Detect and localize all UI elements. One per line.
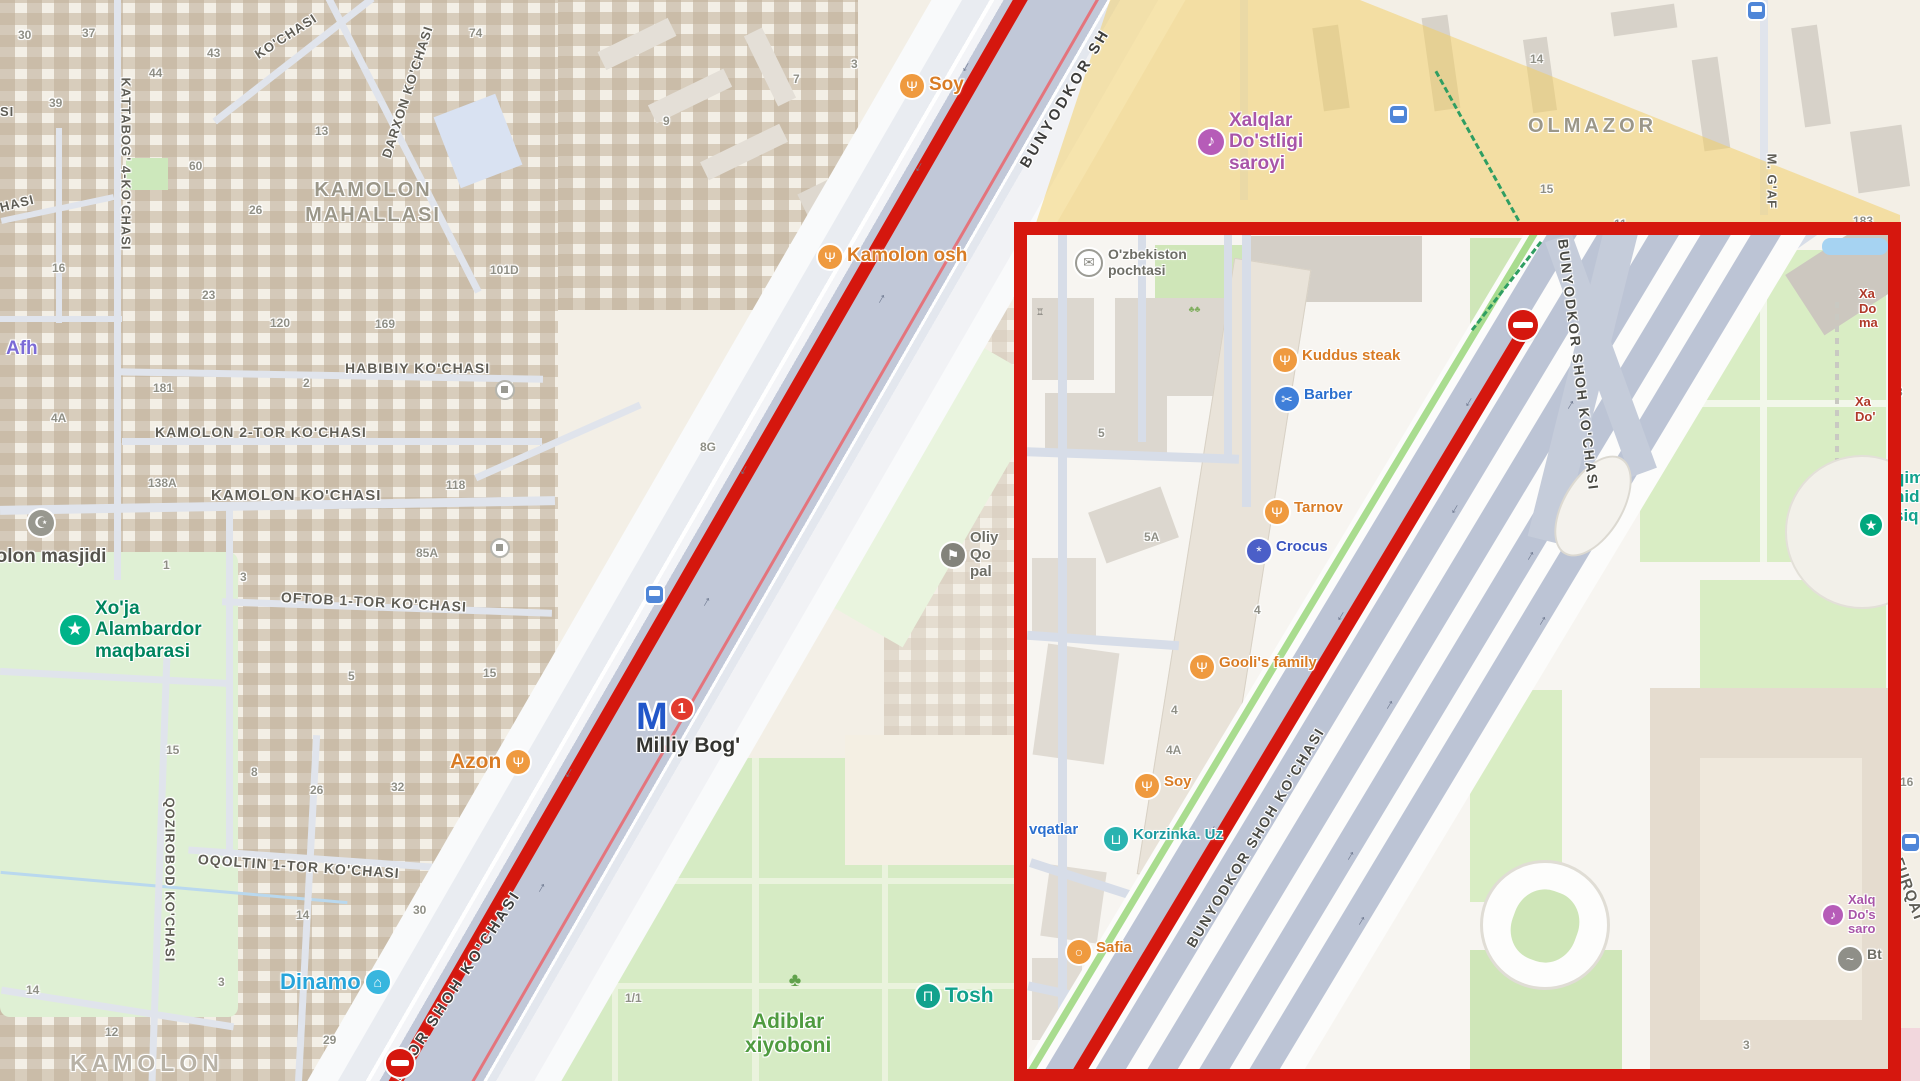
area-label: OLMAZOR	[1528, 114, 1657, 139]
map-poi[interactable]: ♣	[780, 966, 810, 996]
poi-label: nolon masjidi	[0, 546, 106, 567]
building-number: 138A	[148, 476, 177, 490]
street	[226, 506, 233, 866]
poi-label: Afh	[6, 338, 38, 359]
building-number: 1	[163, 558, 170, 572]
poi-label: Kamolon osh	[847, 245, 967, 266]
poi-icon: ☪	[28, 510, 54, 536]
street	[56, 128, 62, 323]
map-poi[interactable]: ★ Xo'ja Alambardor maqbarasi	[60, 598, 202, 662]
building-number: 1/1	[625, 991, 642, 1005]
poi-label: Dinamo	[280, 970, 361, 995]
transit-stop-icon[interactable]	[1390, 106, 1407, 123]
poi-icon: Ψ	[818, 245, 842, 269]
street-label: KAMOLON KO'CHASI	[211, 487, 381, 504]
inset-border	[1014, 222, 1901, 1081]
poi-label: Xalqlar Do'stligi saroyi	[1229, 110, 1303, 174]
map-poi[interactable]: nolon masjidi	[0, 546, 106, 567]
map-poi[interactable]: Afh	[6, 338, 38, 359]
building-number: 181	[153, 381, 173, 395]
building-number: 30	[413, 903, 426, 917]
building-number: 3	[218, 975, 225, 989]
building	[1611, 4, 1678, 37]
building-number: 39	[49, 96, 62, 110]
building-number: 15	[1540, 182, 1553, 196]
building-number: 13	[315, 124, 328, 138]
poi-label: Xo'ja Alambardor maqbarasi	[95, 598, 202, 662]
building-number: 14	[1530, 52, 1543, 66]
building-number: 43	[207, 46, 220, 60]
building-number: 16	[1900, 775, 1913, 789]
building-number: 8	[251, 765, 258, 779]
building-number: 37	[82, 26, 95, 40]
poi-label: Tosh	[945, 984, 994, 1008]
poi-label: Oliy Qo pal	[970, 530, 998, 580]
building-number: 30	[18, 28, 31, 42]
street-label: M. G'AF	[1765, 154, 1780, 210]
map-poi[interactable]: ⌂ Dinamo	[280, 970, 390, 995]
map-poi[interactable]: ☪	[28, 510, 54, 536]
building-number: 74	[469, 26, 482, 40]
building-number: 12	[105, 1025, 118, 1039]
map-poi[interactable]: Π Tosh	[916, 984, 994, 1008]
plaza-area	[845, 735, 1020, 865]
metro-line-badge: 1	[671, 698, 693, 720]
transit-stop-icon[interactable]	[1748, 2, 1765, 19]
street-label: SI	[0, 104, 14, 119]
building-number: 29	[323, 1033, 336, 1047]
building-number: 8G	[700, 440, 716, 454]
building-number: 3	[851, 57, 858, 71]
poi-icon: ⌂	[366, 970, 390, 994]
no-entry-icon	[386, 1049, 414, 1077]
poi-icon: Π	[916, 984, 940, 1008]
poi-label: Adiblar xiyoboni	[745, 1010, 831, 1057]
map-canvas[interactable]: KO'CHASIDARXON KO'CHASIKATTABOG' 4-KO'CH…	[0, 0, 1920, 1081]
building-number: 101D	[490, 263, 519, 277]
building-number: 60	[189, 159, 202, 173]
map-poi[interactable]: Ψ Azon	[450, 750, 530, 774]
metro-station-label: Milliy Bog'	[636, 734, 796, 758]
area-label: KAMOLON MAHALLASI	[263, 178, 483, 228]
metro-icon: M	[636, 698, 668, 736]
building-number: 15	[483, 666, 496, 680]
poi-icon: ★	[60, 615, 90, 645]
building-number: 32	[391, 780, 404, 794]
street-label: QOZIROBOD KO'CHASI	[163, 798, 178, 963]
building	[1791, 25, 1831, 128]
poi-icon: ♪	[1198, 129, 1224, 155]
building-number: 14	[296, 908, 309, 922]
poi-icon: Ψ	[900, 74, 924, 98]
building-number: 2	[303, 376, 310, 390]
building	[1850, 125, 1910, 194]
building-number: 5	[348, 669, 355, 683]
transit-stop-icon[interactable]	[490, 538, 510, 558]
map-poi[interactable]: ⚑ Oliy Qo pal	[941, 530, 998, 580]
building-number: 23	[202, 288, 215, 302]
poi-icon: ♣	[780, 966, 810, 996]
poi-label: Azon	[450, 750, 501, 774]
map-poi[interactable]: ♪ Xalqlar Do'stligi saroyi	[1198, 110, 1303, 174]
map-poi[interactable]: Ψ Soy	[900, 74, 964, 98]
building-number: 14	[26, 983, 39, 997]
building-number: 120	[270, 316, 290, 330]
street-label: HABIBIY KO'CHASI	[345, 360, 490, 376]
street-label: KATTABOG' 4-KO'CHASI	[119, 78, 134, 251]
transit-stop-icon[interactable]	[495, 380, 515, 400]
building-number: 85A	[416, 546, 438, 560]
metro-station-milliy-bog[interactable]: M1 Milliy Bog'	[636, 698, 796, 758]
building-number: 7	[793, 72, 800, 86]
building-number: 4A	[51, 411, 66, 425]
map-poi[interactable]: Adiblar xiyoboni	[745, 1010, 831, 1057]
building-number: 44	[149, 66, 162, 80]
building-number: 26	[249, 203, 262, 217]
building-number: 16	[52, 261, 65, 275]
building-number: 15	[166, 743, 179, 757]
building-number: 26	[310, 783, 323, 797]
poi-icon: ⚑	[941, 543, 965, 567]
building-number: 118	[446, 478, 465, 492]
building-number: 169	[375, 317, 395, 331]
poi-label: Soy	[929, 74, 964, 95]
transit-stop-icon[interactable]	[1902, 834, 1919, 851]
building-number: 9	[663, 114, 670, 128]
transit-stop-icon[interactable]	[646, 586, 663, 603]
map-poi[interactable]: Ψ Kamolon osh	[818, 245, 967, 269]
building-number: 3	[240, 570, 247, 584]
street-label: KAMOLON	[70, 1050, 224, 1077]
poi-icon: Ψ	[506, 750, 530, 774]
street-label: KAMOLON 2-TOR KO'CHASI	[155, 424, 367, 440]
